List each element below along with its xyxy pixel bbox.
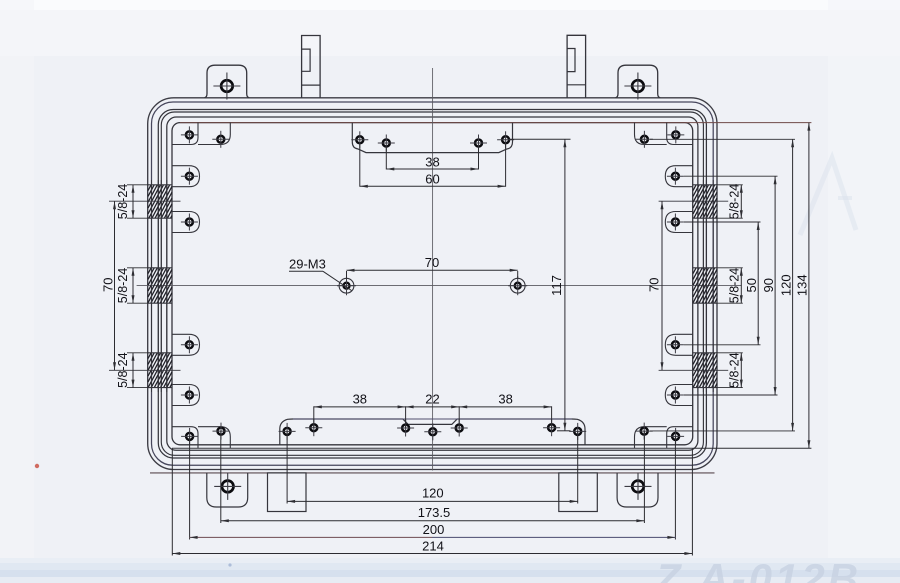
svg-text:70: 70	[646, 278, 661, 292]
svg-text:5/8-24: 5/8-24	[116, 268, 130, 303]
svg-text:70: 70	[100, 278, 115, 292]
svg-text:5/8-24: 5/8-24	[116, 352, 130, 387]
svg-text:22: 22	[425, 392, 439, 407]
svg-text:134: 134	[795, 274, 810, 296]
svg-text:38: 38	[353, 392, 367, 407]
svg-text:5/8-24: 5/8-24	[727, 184, 741, 219]
svg-text:70: 70	[425, 255, 439, 270]
svg-text:38: 38	[498, 392, 512, 407]
svg-text:50: 50	[744, 278, 759, 292]
svg-text:38: 38	[425, 154, 439, 169]
svg-text:5/8-24: 5/8-24	[727, 352, 741, 387]
svg-text:120: 120	[422, 485, 444, 500]
svg-text:29-M3: 29-M3	[289, 257, 326, 272]
svg-text:173.5: 173.5	[418, 505, 451, 520]
svg-text:200: 200	[423, 522, 445, 537]
svg-text:117: 117	[549, 275, 564, 296]
svg-text:214: 214	[422, 538, 444, 553]
svg-text:5/8-24: 5/8-24	[116, 184, 130, 219]
svg-text:90: 90	[761, 278, 776, 292]
svg-text:120: 120	[779, 274, 794, 296]
svg-text:60: 60	[425, 171, 439, 186]
svg-text:Z,A-012B: Z,A-012B	[654, 555, 861, 583]
svg-text:5/8-24: 5/8-24	[727, 268, 741, 303]
